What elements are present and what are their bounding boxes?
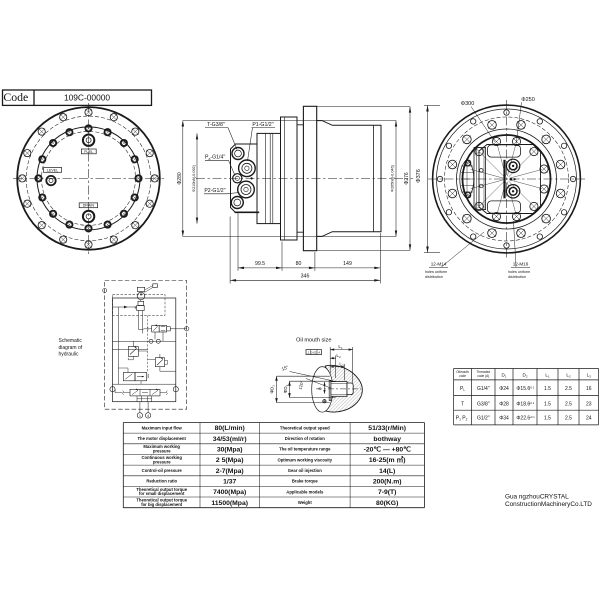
svg-text:Φ250: Φ250: [521, 97, 535, 103]
svg-text:hydraulic: hydraulic: [59, 352, 80, 358]
svg-text:14(L): 14(L): [379, 468, 395, 475]
svg-text:+0.1: +0.1: [529, 401, 535, 405]
svg-text:for big displacement: for big displacement: [141, 502, 183, 507]
svg-text:2.5: 2.5: [565, 416, 572, 422]
svg-text:7400(Mpa): 7400(Mpa): [213, 489, 246, 496]
svg-text:ConstructionMachineryCo.LTD: ConstructionMachineryCo.LTD: [505, 501, 592, 508]
svg-text:2.5: 2.5: [565, 401, 572, 407]
svg-text:Φ376: Φ376: [416, 169, 422, 183]
svg-text:bothway: bothway: [373, 436, 401, 443]
svg-text:1.5: 1.5: [544, 386, 551, 392]
svg-text:Optimum working viscosity: Optimum working viscosity: [277, 457, 332, 462]
svg-text:pressure: pressure: [153, 449, 171, 454]
svg-text:-20℃ — +80℃: -20℃ — +80℃: [364, 446, 412, 454]
svg-text:149: 149: [343, 261, 352, 267]
svg-text:Weight: Weight: [298, 500, 312, 505]
svg-text:Schematic: Schematic: [59, 338, 83, 344]
svg-text:G3/8": G3/8": [477, 401, 490, 407]
svg-text:Code: Code: [3, 90, 28, 104]
svg-text:Direction of rotation: Direction of rotation: [285, 436, 325, 441]
svg-text:The motor displacement: The motor displacement: [137, 436, 186, 441]
svg-text:Oil mouth size: Oil mouth size: [296, 338, 331, 344]
svg-text:2 5(Mpa): 2 5(Mpa): [216, 457, 244, 464]
svg-text:A: A: [318, 350, 320, 354]
svg-text:⊥: ⊥: [307, 350, 310, 354]
svg-text:FUEL: FUEL: [84, 150, 93, 154]
svg-text:Maximum input flow: Maximum input flow: [142, 425, 183, 430]
svg-text:holes uniform: holes uniform: [508, 270, 530, 274]
svg-text:distribution: distribution: [508, 275, 526, 279]
svg-text:Reduction ratio: Reduction ratio: [146, 479, 177, 484]
svg-text:51/33(r/Min): 51/33(r/Min): [368, 425, 406, 432]
svg-text:distribution: distribution: [425, 275, 443, 279]
svg-text:Φ210h8(-0.092): Φ210h8(-0.092): [192, 164, 196, 192]
svg-text:G1/2": G1/2": [477, 416, 490, 422]
svg-text:109C-00000: 109C-00000: [64, 93, 110, 103]
svg-text:Φ265h8(-0.046): Φ265h8(-0.046): [391, 164, 395, 192]
svg-text:1.5: 1.5: [544, 401, 551, 407]
svg-text:2-7(Mpa): 2-7(Mpa): [216, 468, 244, 475]
svg-text:2.5: 2.5: [565, 386, 572, 392]
svg-text:11500(Mpa): 11500(Mpa): [211, 500, 248, 507]
svg-text:code (A): code (A): [477, 374, 489, 378]
svg-text:pressure: pressure: [153, 459, 171, 464]
svg-text:0.02: 0.02: [311, 350, 317, 354]
svg-text:24: 24: [586, 416, 592, 422]
svg-text:Φ24: Φ24: [499, 386, 509, 392]
svg-text:1/37: 1/37: [223, 479, 236, 486]
svg-text:G1/4": G1/4": [477, 386, 490, 392]
svg-text:1: 1: [139, 414, 141, 418]
svg-text:Φ34: Φ34: [499, 416, 509, 422]
svg-text:+0.1: +0.1: [529, 386, 535, 390]
svg-text:7-9(T): 7-9(T): [378, 489, 397, 496]
svg-text:12-M16: 12-M16: [513, 262, 529, 267]
svg-text:T: T: [461, 401, 464, 407]
svg-text:80: 80: [296, 261, 302, 267]
svg-text:Theoretical output speed: Theoretical output speed: [280, 425, 330, 430]
svg-text:The oil temperature range: The oil temperature range: [279, 447, 331, 452]
svg-text:34/53(ml/r): 34/53(ml/r): [213, 436, 247, 443]
svg-text:T-G3/8'': T-G3/8'': [207, 122, 225, 128]
svg-text:1.5: 1.5: [544, 416, 551, 422]
svg-text:code: code: [459, 374, 466, 378]
svg-text:16: 16: [586, 386, 592, 392]
svg-text:Φ22.6: Φ22.6: [516, 416, 530, 422]
svg-text:Φ280: Φ280: [177, 172, 183, 185]
svg-text:346: 346: [301, 274, 310, 280]
svg-text:Φ276: Φ276: [404, 172, 410, 185]
svg-text:Φ300: Φ300: [461, 101, 475, 107]
svg-text:P1-G1/2'': P1-G1/2'': [252, 122, 273, 128]
svg-text:80(KG): 80(KG): [376, 500, 398, 507]
svg-text:23: 23: [586, 401, 592, 407]
svg-text:for small displacement: for small displacement: [139, 491, 185, 496]
svg-text:diagram of: diagram of: [59, 345, 83, 351]
svg-text:+0.1: +0.1: [530, 415, 536, 419]
svg-text:Brake torque: Brake torque: [292, 479, 319, 484]
svg-text:4: 4: [147, 414, 149, 418]
svg-text:P2-G1/2'': P2-G1/2'': [204, 188, 225, 194]
svg-text:12-M14: 12-M14: [431, 262, 447, 267]
svg-text:99.5: 99.5: [255, 261, 265, 267]
svg-text:200(N.m): 200(N.m): [373, 479, 402, 486]
svg-text:Gear oil injection: Gear oil injection: [288, 468, 322, 473]
svg-text:Control-oil pressure: Control-oil pressure: [142, 468, 183, 473]
svg-text:DRAIN: DRAIN: [83, 204, 95, 208]
svg-text:80(L/min): 80(L/min): [215, 425, 245, 432]
svg-text:LEVEL: LEVEL: [47, 168, 58, 172]
svg-text:Pa-G1/4'': Pa-G1/4'': [205, 155, 225, 161]
svg-text:holes uniform: holes uniform: [425, 270, 447, 274]
svg-text:Φ28: Φ28: [499, 401, 509, 407]
svg-text:Applicable models: Applicable models: [286, 489, 324, 494]
svg-text:Gua ngzhouCRYSTAL: Gua ngzhouCRYSTAL: [505, 494, 569, 501]
svg-text:30(Mpa): 30(Mpa): [217, 447, 243, 454]
svg-text:16-25(m ㎡): 16-25(m ㎡): [369, 455, 406, 464]
